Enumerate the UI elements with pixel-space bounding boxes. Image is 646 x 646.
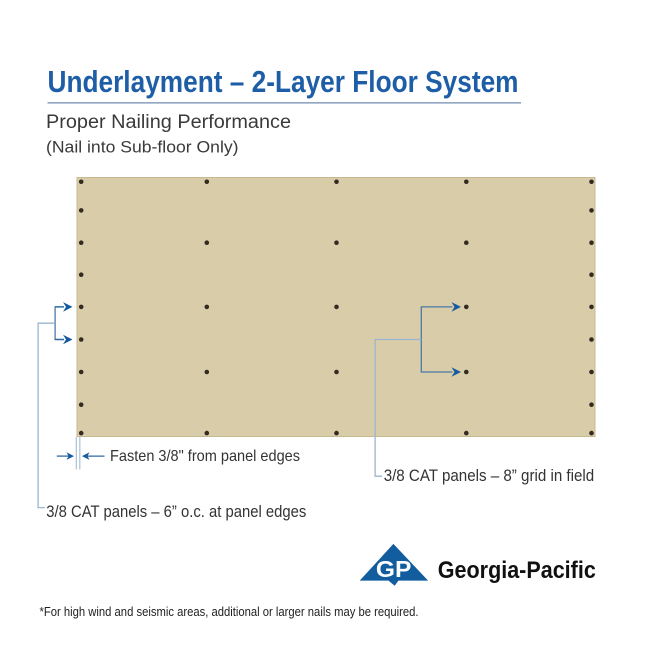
svg-text:Georgia-Pacific: Georgia-Pacific bbox=[438, 557, 596, 584]
svg-text:(Nail into Sub-floor Only): (Nail into Sub-floor Only) bbox=[46, 138, 239, 157]
svg-text:GP: GP bbox=[376, 556, 412, 582]
svg-text:*For high wind and seismic are: *For high wind and seismic areas, additi… bbox=[40, 604, 419, 619]
svg-text:Proper Nailing Performance: Proper Nailing Performance bbox=[46, 112, 291, 133]
svg-text:3/8 CAT panels – 6” o.c. at pa: 3/8 CAT panels – 6” o.c. at panel edges bbox=[46, 503, 306, 521]
svg-text:Fasten 3/8" from panel edges: Fasten 3/8" from panel edges bbox=[110, 448, 300, 465]
svg-text:3/8 CAT panels – 8” grid in fi: 3/8 CAT panels – 8” grid in field bbox=[384, 467, 595, 485]
svg-text:Underlayment – 2-Layer Floor S: Underlayment – 2-Layer Floor System bbox=[48, 64, 519, 99]
